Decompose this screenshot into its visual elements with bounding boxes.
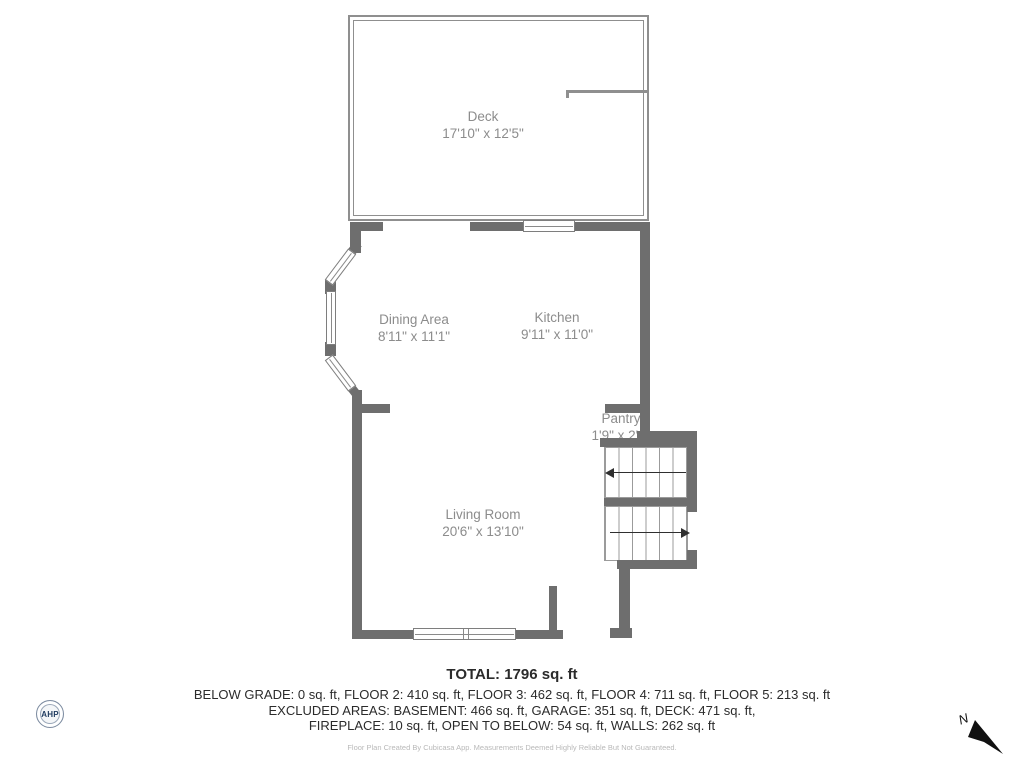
area-summary: TOTAL: 1796 sq. ft BELOW GRADE: 0 sq. ft… (0, 666, 1024, 734)
deck-railing-notch (567, 90, 647, 93)
stairs-arrow-down-head (681, 528, 690, 538)
disclaimer-text: Floor Plan Created By Cubicasa App. Meas… (0, 743, 1024, 752)
stairs-lower-flight (604, 506, 688, 561)
room-dims-living: 20'6" x 13'10" (442, 523, 524, 540)
room-dims-dining: 8'11" x 11'1" (378, 328, 450, 345)
window-mullion (463, 629, 469, 639)
stairs-arrow-down-line (610, 532, 682, 533)
room-dims-kitchen: 9'11" x 11'0" (521, 326, 593, 343)
room-name-deck: Deck (442, 108, 524, 125)
room-label-dining: Dining Area 8'11" x 11'1" (378, 311, 450, 345)
room-label-deck: Deck 17'10" x 12'5" (442, 108, 524, 142)
living-room-window (413, 628, 516, 640)
north-arrow: N (950, 700, 1010, 760)
stairs-arrow-up-head (605, 468, 614, 478)
floors-area-text: BELOW GRADE: 0 sq. ft, FLOOR 2: 410 sq. … (0, 687, 1024, 703)
wall-entry-foot (610, 628, 632, 638)
room-name-dining: Dining Area (378, 311, 450, 328)
ahp-logo: AHP (36, 700, 64, 728)
wall-bottom-1 (352, 630, 413, 639)
kitchen-window (523, 220, 575, 232)
wall-entry-vertical (619, 566, 630, 632)
wall-right-kitchen (640, 222, 650, 443)
deck-railing-notch-hook (566, 90, 569, 98)
room-label-kitchen: Kitchen 9'11" x 11'0" (521, 309, 593, 343)
wall-top-2 (470, 222, 523, 231)
room-name-kitchen: Kitchen (521, 309, 593, 326)
bay-window-upper (325, 248, 356, 285)
room-label-living: Living Room 20'6" x 13'10" (442, 506, 524, 540)
north-label: N (956, 710, 971, 728)
floor-plan-page: Deck 17'10" x 12'5" Dining Area 8'11" x … (0, 0, 1024, 768)
wall-top-3 (575, 222, 650, 231)
wall-stair-top (600, 438, 697, 447)
wall-left-lower (352, 390, 362, 638)
bay-window-lower (325, 354, 356, 391)
room-name-living: Living Room (442, 506, 524, 523)
wall-pantry-stub (605, 404, 641, 413)
north-arrow-dart (968, 720, 1003, 754)
excluded-areas-text-1: EXCLUDED AREAS: BASEMENT: 466 sq. ft, GA… (0, 703, 1024, 719)
stairs-arrow-up-line (613, 472, 686, 473)
wall-closet-stub (549, 586, 557, 632)
wall-stub-dining-living (362, 404, 390, 413)
excluded-areas-text-2: FIREPLACE: 10 sq. ft, OPEN TO BELOW: 54 … (0, 718, 1024, 734)
total-area-text: TOTAL: 1796 sq. ft (0, 666, 1024, 683)
bay-window-middle (326, 291, 336, 345)
wall-stair-landing (604, 498, 694, 506)
ahp-logo-text: AHP (41, 710, 59, 719)
room-dims-deck: 17'10" x 12'5" (442, 125, 524, 142)
